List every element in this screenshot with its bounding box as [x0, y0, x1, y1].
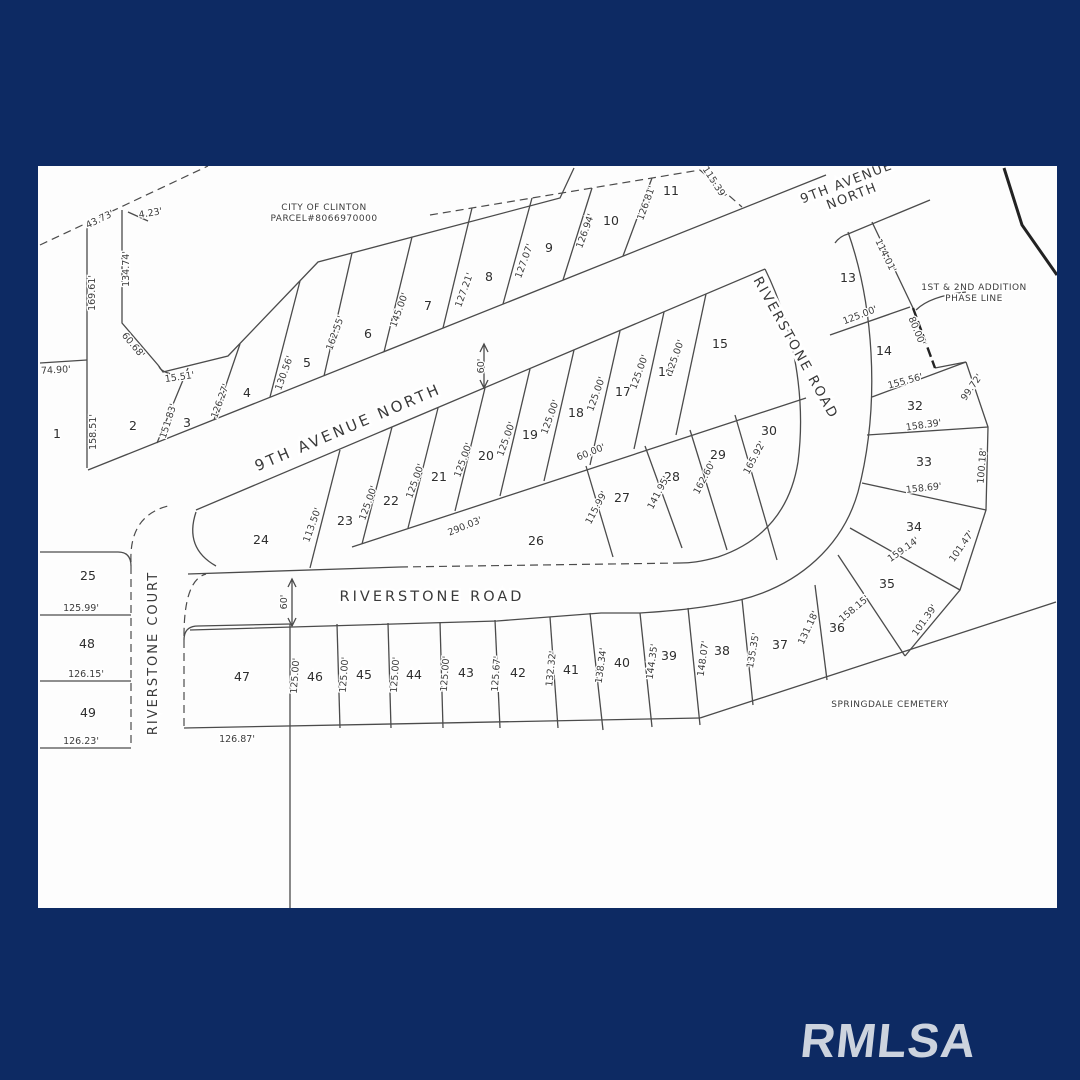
- lot-number: 41: [563, 662, 579, 677]
- lot-number: 32: [907, 398, 923, 413]
- dimension-label: 126.23': [63, 736, 99, 747]
- lot-number: 7: [424, 298, 432, 313]
- lot-number: 13: [840, 270, 856, 285]
- lot-number: 10: [603, 213, 619, 228]
- lot-number: 26: [528, 533, 544, 548]
- plat-map: 1234567891011131415161718192021222324252…: [0, 0, 1080, 1080]
- lot-number: 39: [661, 648, 677, 663]
- dimension-label: 169.61': [87, 275, 98, 311]
- lot-number: 29: [710, 447, 726, 462]
- street-label-riverstone-road: RIVERSTONE ROAD: [340, 589, 525, 605]
- city-parcel-note: CITY OF CLINTONPARCEL#8066970000: [270, 203, 377, 224]
- lot-number: 30: [761, 423, 777, 438]
- lot-number: 14: [876, 343, 892, 358]
- dimension-label: 125.99': [63, 603, 99, 614]
- lot-number: 47: [234, 669, 250, 684]
- lot-number: 4: [243, 385, 251, 400]
- lot-number: 20: [478, 448, 494, 463]
- lot-number: 23: [337, 513, 353, 528]
- lot-number: 22: [383, 493, 399, 508]
- lot-number: 21: [431, 469, 447, 484]
- lot-number: 34: [906, 519, 922, 534]
- lot-number: 33: [916, 454, 932, 469]
- lot-number: 43: [458, 665, 474, 680]
- lot-number: 9: [545, 240, 553, 255]
- lot-number: 49: [80, 705, 96, 720]
- cemetery-note: SPRINGDALE CEMETERY: [831, 700, 949, 710]
- dimension-label: 126.15': [68, 669, 104, 680]
- lot-number: 19: [522, 427, 538, 442]
- lot-number: 40: [614, 655, 630, 670]
- lot-number: 11: [663, 183, 679, 198]
- lot-number: 18: [568, 405, 584, 420]
- lot-number: 25: [80, 568, 96, 583]
- lot-number: 42: [510, 665, 526, 680]
- listing-photo: 1234567891011131415161718192021222324252…: [0, 0, 1080, 1080]
- map-sheet: [38, 166, 1057, 908]
- lot-number: 2: [129, 418, 137, 433]
- lot-number: 27: [614, 490, 630, 505]
- lot-number: 15: [712, 336, 728, 351]
- lot-number: 5: [303, 355, 311, 370]
- lot-number: 24: [253, 532, 269, 547]
- lot-number: 45: [356, 667, 372, 682]
- lot-number: 6: [364, 326, 372, 341]
- dimension-label: 134.74': [121, 251, 132, 287]
- dimension-label: 126.87': [219, 734, 255, 745]
- lot-number: 8: [485, 269, 493, 284]
- lot-number: 1: [53, 426, 61, 441]
- lot-number: 35: [879, 576, 895, 591]
- dimension-label: 60': [476, 359, 487, 374]
- dimension-label: 60': [279, 595, 290, 610]
- lot-number: 38: [714, 643, 730, 658]
- dimension-label: 74.90': [41, 364, 71, 377]
- lot-number: 3: [183, 415, 191, 430]
- dimension-label: 158.51': [88, 414, 99, 450]
- lot-number: 46: [307, 669, 323, 684]
- lot-number: 44: [406, 667, 422, 682]
- rmlsa-watermark: RMLSA: [798, 1014, 979, 1068]
- lot-number: 37: [772, 637, 788, 652]
- lot-number: 48: [79, 636, 95, 651]
- street-label-riverstone-court: RIVERSTONE COURT: [146, 571, 161, 735]
